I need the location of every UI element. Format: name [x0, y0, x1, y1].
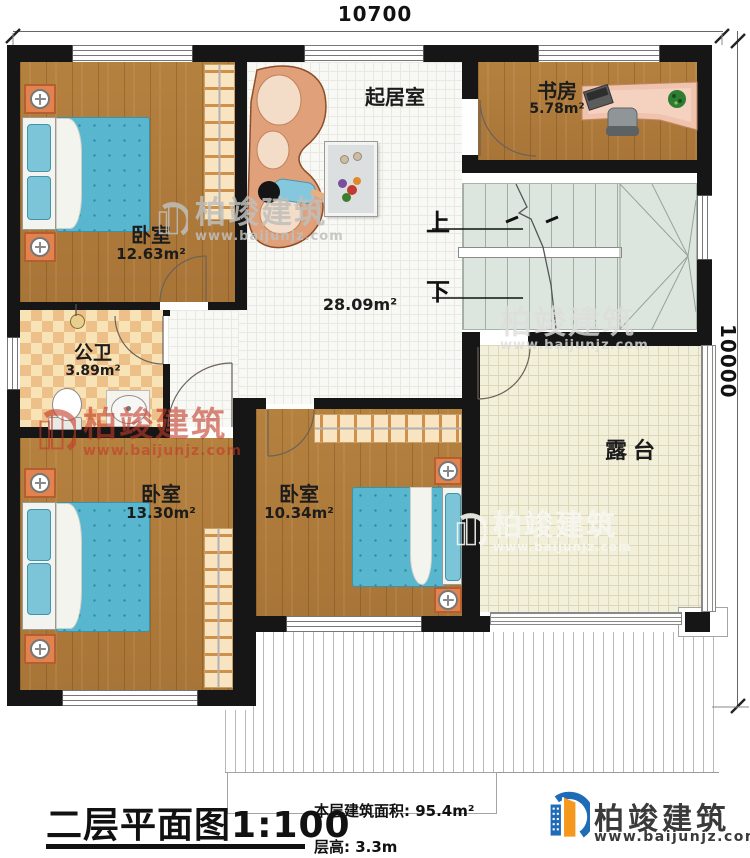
wall-segment [256, 398, 266, 409]
nightstand [434, 457, 462, 485]
dimension-top-line [13, 31, 723, 32]
room-area: 12.63m² [86, 246, 216, 263]
bed-blanket [56, 118, 82, 229]
room-label-bathroom: 公卫 3.89m² [28, 343, 158, 379]
floor-hallway [168, 310, 238, 427]
window [538, 45, 660, 62]
window [62, 690, 198, 706]
wall-segment [256, 616, 286, 632]
title-underline [46, 844, 305, 849]
nightstand [24, 468, 56, 498]
window [7, 337, 20, 390]
terrace-corner-post [685, 612, 710, 632]
lamp-icon [30, 639, 50, 659]
wall-segment [314, 398, 462, 409]
room-name: 书房 [492, 80, 622, 102]
faucet-icon [126, 406, 131, 411]
floor-height-text: 层高: 3.3m [314, 836, 397, 857]
wardrobe [314, 414, 462, 443]
dimension-right-label: 10000 [716, 324, 740, 396]
room-label-bedroom-top-left: 卧室 12.63m² [86, 224, 216, 263]
cup-icon [353, 152, 362, 161]
window [286, 616, 422, 632]
wall-segment [7, 690, 62, 706]
nightstand [24, 84, 56, 114]
lamp-icon [438, 461, 458, 481]
plan-title-row: 二层平面图1:100 [46, 796, 351, 848]
wall-segment [193, 45, 304, 62]
wall-segment [424, 45, 538, 62]
room-label-living: 起居室 [330, 86, 460, 108]
plant-icon [668, 90, 686, 108]
wall-segment [462, 332, 480, 632]
pillow [27, 509, 51, 561]
flower-icon [338, 179, 347, 188]
lamp-icon [30, 237, 50, 257]
toilet [52, 388, 82, 421]
floor-area-text: 本层建筑面积: 95.4m² [314, 800, 474, 821]
wall-segment [208, 302, 247, 310]
wall-segment [163, 364, 170, 427]
room-name: 卧室 [234, 483, 364, 505]
stair-down-label: 下 [426, 272, 450, 307]
room-area: 13.30m² [96, 505, 226, 522]
pillow [445, 493, 461, 581]
room-area: 3.89m² [28, 364, 158, 379]
terrace-railing-right [701, 345, 716, 612]
room-area: 5.78m² [492, 102, 622, 117]
wall-segment [462, 62, 478, 99]
flower-icon [353, 177, 361, 185]
wall-segment [7, 390, 20, 690]
room-name: 卧室 [96, 483, 226, 505]
stair-handrail [458, 247, 622, 258]
wall-segment [20, 302, 160, 310]
wall-segment [163, 310, 170, 316]
room-name: 公卫 [28, 343, 158, 364]
cup-icon [340, 155, 349, 164]
wall-segment [422, 616, 490, 632]
room-area-living: 28.09m² [300, 296, 420, 314]
room-label-bedroom-bottom-left: 卧室 13.30m² [96, 483, 226, 522]
wall-segment [697, 260, 712, 345]
dimension-top-label: 10700 [300, 2, 450, 26]
nightstand [24, 232, 56, 262]
wall-segment [528, 332, 712, 346]
room-name: 卧室 [86, 224, 216, 246]
window [72, 45, 193, 62]
roof-overhang-left [225, 710, 253, 773]
lamp-icon [30, 89, 50, 109]
wall-segment [20, 427, 170, 438]
floor-plan-canvas: 10700 10000 [0, 0, 750, 858]
window [304, 45, 424, 62]
plan-title: 二层平面图 [46, 796, 231, 848]
brand-logo-icon [536, 789, 590, 849]
pillow [27, 124, 51, 172]
nightstand [24, 634, 56, 664]
wardrobe [204, 64, 235, 220]
person-head [258, 181, 280, 203]
brand-url: www.baijunjz.com [594, 829, 750, 845]
room-label-bedroom-bottom-center: 卧室 10.34m² [234, 483, 364, 522]
stair-up-label: 上 [426, 203, 450, 238]
terrace-railing-bottom [490, 612, 682, 625]
nightstand [434, 587, 462, 613]
sofa [243, 62, 335, 252]
wall-segment [7, 62, 20, 337]
floor-terrace [478, 345, 703, 612]
room-label-study: 书房 5.78m² [492, 80, 622, 117]
room-area: 10.34m² [234, 505, 364, 522]
room-name: 起居室 [330, 86, 460, 108]
wall-segment [462, 160, 712, 173]
room-label-terrace: 露台 [578, 440, 688, 464]
coffee-table [325, 142, 377, 216]
lamp-icon [30, 473, 50, 493]
pillow [27, 563, 51, 615]
roof-overhang [253, 632, 719, 773]
flower-icon [342, 193, 351, 202]
lamp-icon [438, 590, 458, 610]
wall-segment [233, 398, 256, 706]
bed-blanket [56, 503, 82, 629]
window [697, 195, 712, 260]
wall-segment [7, 45, 72, 62]
pendant-light-icon [70, 314, 85, 329]
wardrobe [204, 528, 233, 688]
bed-blanket [410, 487, 432, 585]
pillow [27, 176, 51, 220]
